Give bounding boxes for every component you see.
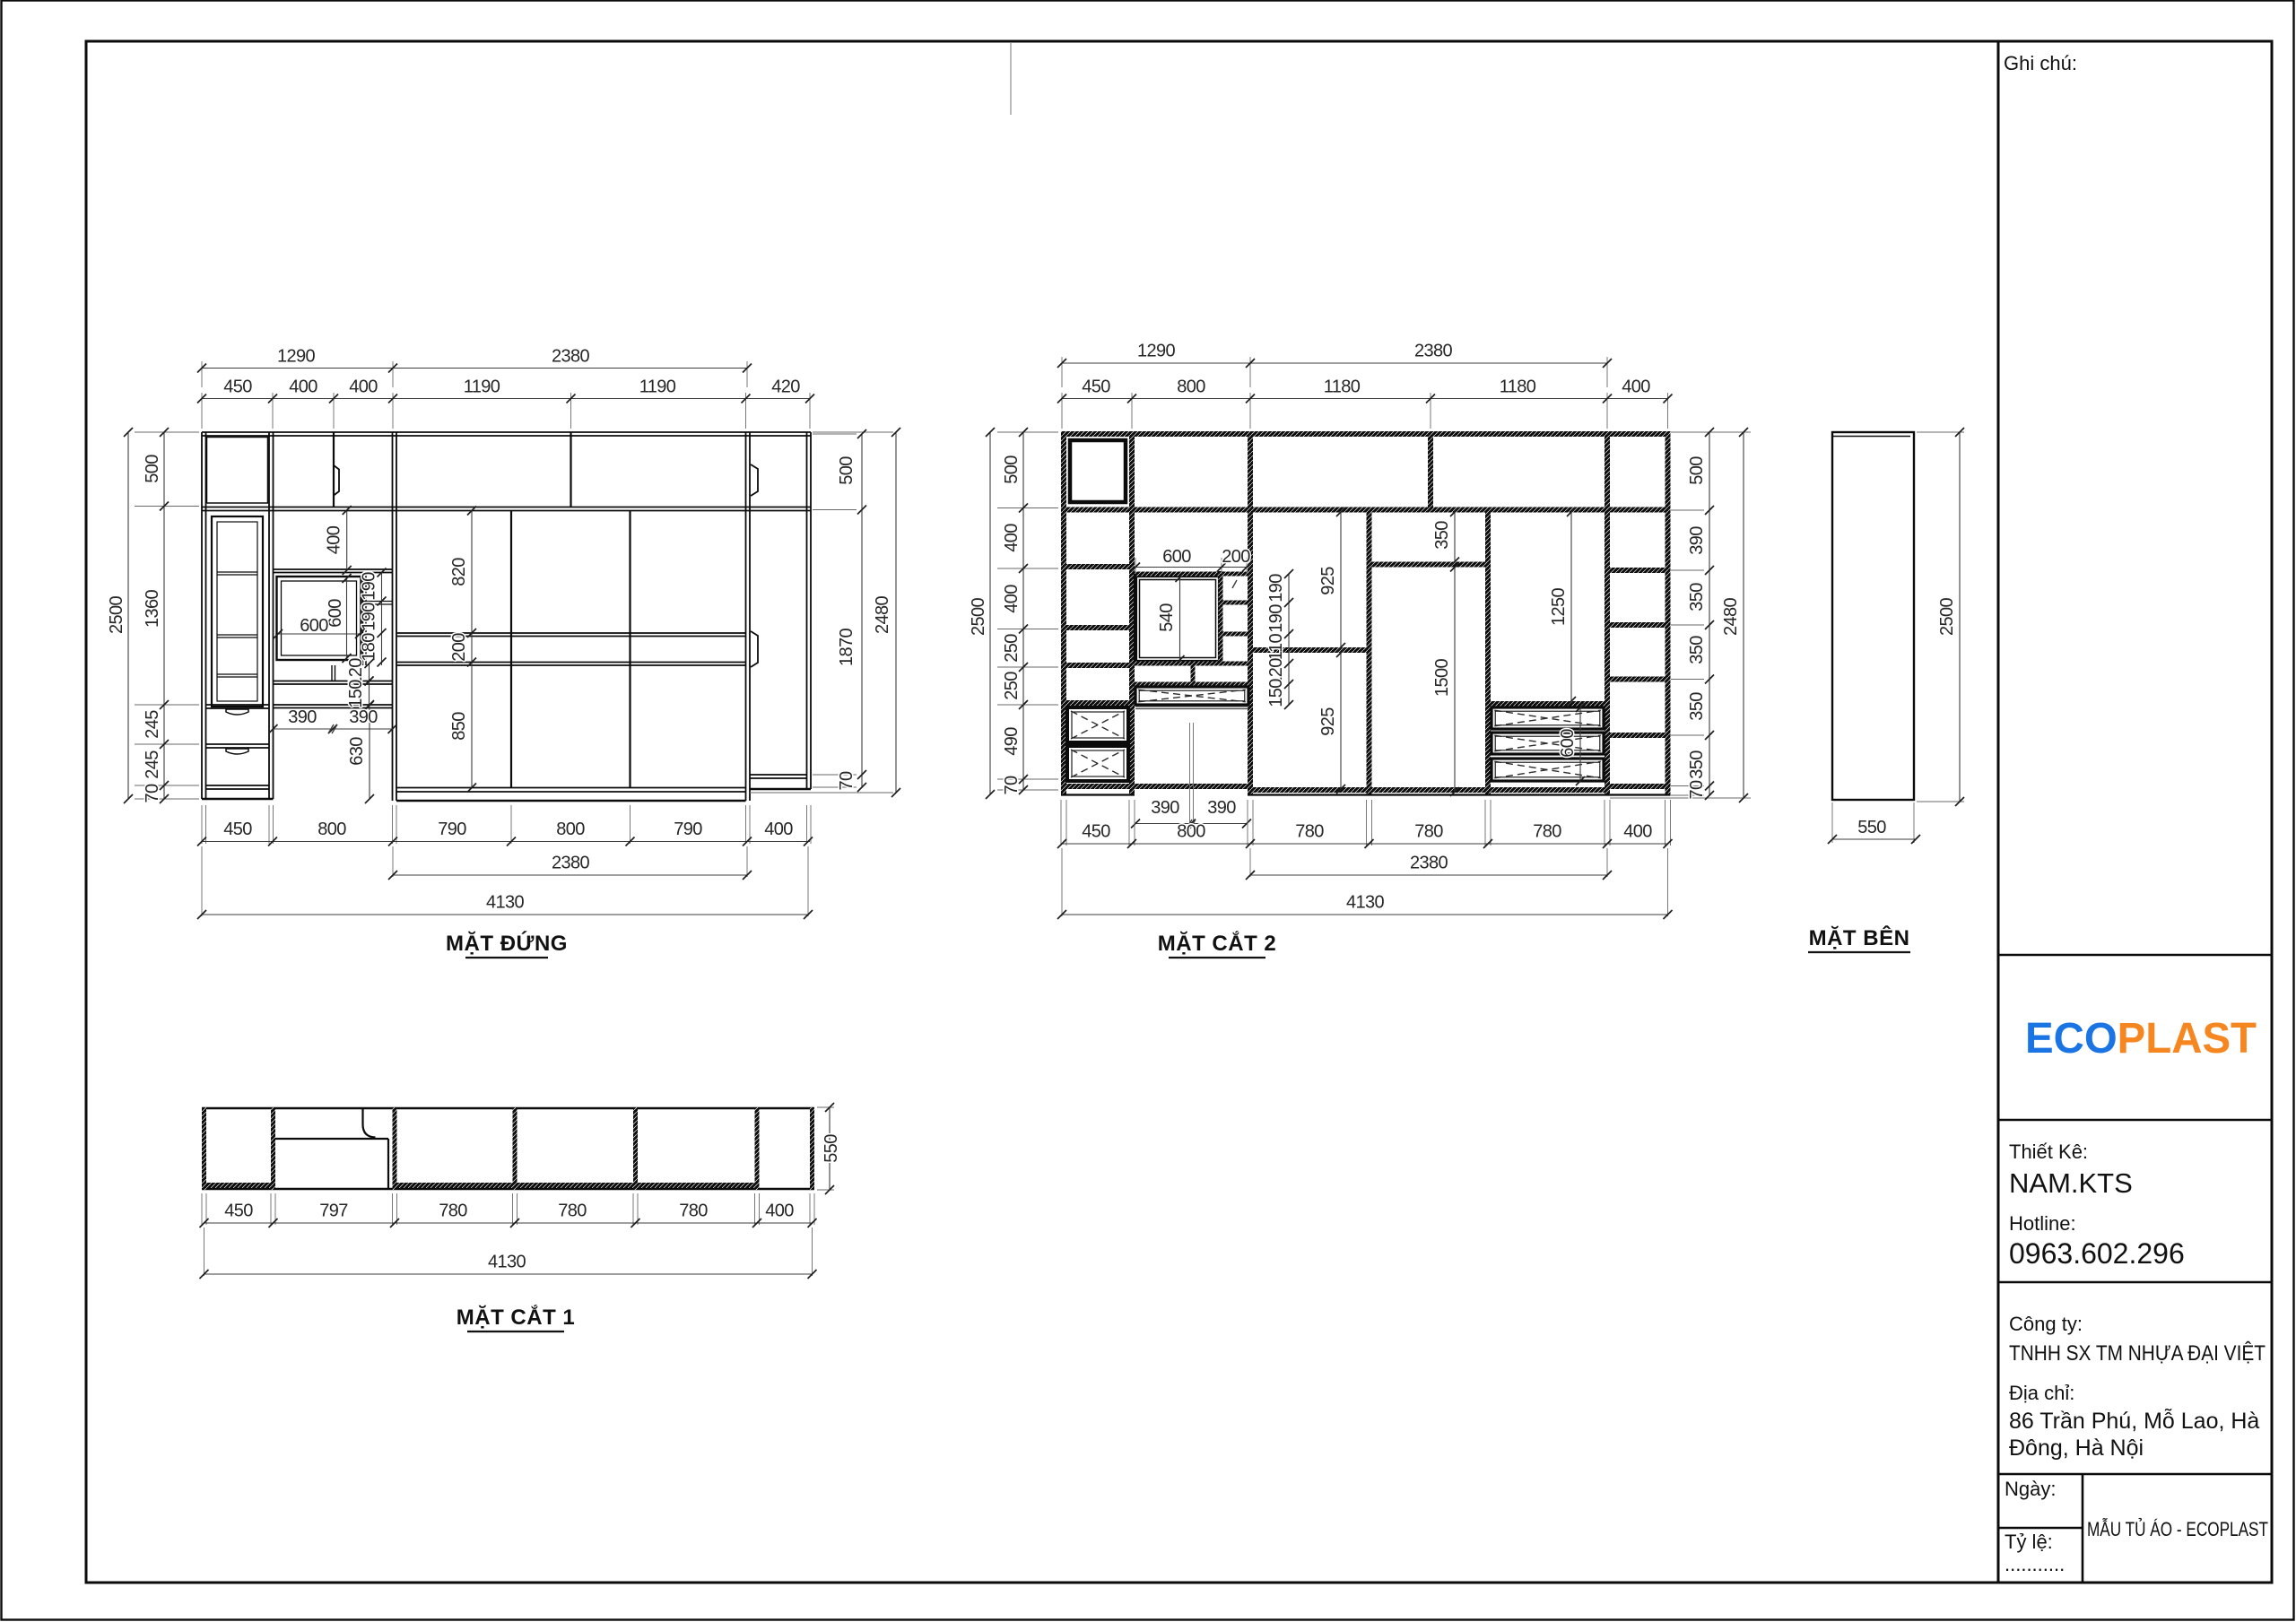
svg-text:800: 800 — [1177, 377, 1205, 397]
svg-text:797: 797 — [319, 1201, 348, 1221]
svg-text:...........: ........... — [2005, 1553, 2065, 1575]
svg-text:ECOPLAST: ECOPLAST — [2025, 1015, 2257, 1063]
svg-text:NAM.KTS: NAM.KTS — [2009, 1167, 2133, 1199]
svg-text:190: 190 — [360, 572, 379, 601]
svg-text:400: 400 — [1002, 585, 1022, 613]
svg-text:390: 390 — [349, 707, 378, 727]
svg-text:200: 200 — [1222, 547, 1250, 567]
svg-text:500: 500 — [1002, 455, 1022, 484]
svg-text:780: 780 — [1533, 822, 1561, 842]
svg-text:450: 450 — [1082, 377, 1110, 397]
svg-text:70: 70 — [1002, 776, 1022, 795]
svg-text:2380: 2380 — [1410, 854, 1448, 873]
svg-text:2380: 2380 — [552, 854, 590, 873]
svg-text:MẶT CẮT 1: MẶT CẮT 1 — [457, 1305, 576, 1330]
svg-text:190: 190 — [1266, 574, 1286, 603]
svg-text:490: 490 — [1002, 727, 1022, 756]
svg-text:1250: 1250 — [1549, 587, 1569, 626]
svg-text:800: 800 — [1177, 822, 1205, 842]
svg-text:1190: 1190 — [464, 377, 500, 397]
svg-text:400: 400 — [1002, 524, 1022, 552]
svg-text:450: 450 — [223, 377, 252, 397]
svg-text:110: 110 — [1266, 633, 1286, 661]
svg-text:450: 450 — [224, 1201, 253, 1221]
svg-text:150: 150 — [1266, 679, 1286, 707]
svg-text:820: 820 — [449, 558, 469, 586]
svg-text:850: 850 — [449, 712, 469, 741]
svg-text:450: 450 — [223, 820, 252, 839]
svg-text:450: 450 — [1082, 822, 1110, 842]
svg-text:400: 400 — [765, 1201, 794, 1221]
svg-text:400: 400 — [1622, 377, 1650, 397]
svg-text:MẪU TỦ ÁO - ECOPLAST: MẪU TỦ ÁO - ECOPLAST — [2087, 1517, 2268, 1540]
svg-text:800: 800 — [317, 820, 346, 839]
svg-text:540: 540 — [1157, 603, 1177, 632]
svg-text:350: 350 — [1432, 521, 1452, 550]
svg-text:2480: 2480 — [873, 595, 892, 634]
svg-text:390: 390 — [1151, 798, 1179, 818]
svg-text:390: 390 — [1687, 526, 1707, 555]
svg-text:200: 200 — [449, 633, 469, 662]
svg-text:550: 550 — [1857, 818, 1886, 837]
svg-text:790: 790 — [674, 820, 702, 839]
svg-text:245: 245 — [143, 710, 162, 739]
svg-text:Đông, Hà Nội: Đông, Hà Nội — [2009, 1436, 2144, 1461]
svg-text:180: 180 — [360, 633, 379, 662]
svg-text:2480: 2480 — [1721, 597, 1741, 636]
svg-text:70: 70 — [143, 784, 162, 803]
svg-text:600: 600 — [1162, 547, 1191, 567]
svg-text:390: 390 — [1207, 798, 1236, 818]
svg-text:2500: 2500 — [107, 595, 126, 634]
svg-text:800: 800 — [556, 820, 585, 839]
svg-text:Ghi chú:: Ghi chú: — [2004, 52, 2077, 74]
svg-text:780: 780 — [558, 1201, 587, 1221]
svg-text:400: 400 — [764, 820, 793, 839]
svg-text:400: 400 — [1623, 822, 1652, 842]
svg-text:780: 780 — [679, 1201, 708, 1221]
svg-text:500: 500 — [143, 455, 162, 483]
svg-text:TNHH SX TM NHỰA ĐẠI VIỆT: TNHH SX TM NHỰA ĐẠI VIỆT — [2009, 1341, 2266, 1366]
svg-text:MẶT BÊN: MẶT BÊN — [1809, 925, 1910, 950]
svg-text:Ngày:: Ngày: — [2005, 1478, 2056, 1500]
svg-text:0963.602.296: 0963.602.296 — [2009, 1237, 2185, 1270]
svg-text:350: 350 — [1687, 636, 1707, 664]
svg-text:400: 400 — [349, 377, 378, 397]
svg-text:Công ty:: Công ty: — [2009, 1313, 2083, 1335]
svg-text:350: 350 — [1687, 583, 1707, 612]
svg-text:400: 400 — [325, 525, 344, 554]
svg-text:390: 390 — [288, 707, 317, 727]
svg-text:4130: 4130 — [486, 893, 525, 913]
svg-text:500: 500 — [837, 456, 857, 485]
svg-text:350: 350 — [1687, 750, 1707, 779]
svg-text:2500: 2500 — [969, 597, 988, 636]
svg-text:250: 250 — [1002, 672, 1022, 700]
svg-text:4130: 4130 — [1346, 893, 1385, 913]
svg-text:600: 600 — [1558, 729, 1578, 758]
svg-text:500: 500 — [1687, 456, 1707, 485]
svg-text:1290: 1290 — [1137, 342, 1176, 361]
svg-text:1360: 1360 — [143, 589, 162, 628]
svg-text:MẶT CẮT 2: MẶT CẮT 2 — [1158, 931, 1277, 956]
svg-text:MẶT ĐỨNG: MẶT ĐỨNG — [446, 931, 568, 956]
svg-text:86 Trần Phú, Mỗ Lao, Hà: 86 Trần Phú, Mỗ Lao, Hà — [2009, 1408, 2259, 1434]
svg-text:1500: 1500 — [1432, 658, 1452, 697]
svg-text:400: 400 — [289, 377, 317, 397]
svg-text:1180: 1180 — [1324, 377, 1361, 397]
svg-text:925: 925 — [1318, 707, 1338, 736]
svg-text:190: 190 — [360, 603, 379, 631]
svg-text:780: 780 — [439, 1201, 467, 1221]
svg-text:Thiết Kê:: Thiết Kê: — [2009, 1141, 2088, 1163]
svg-text:2380: 2380 — [552, 347, 590, 367]
svg-text:630: 630 — [347, 737, 367, 766]
svg-text:4130: 4130 — [488, 1253, 526, 1272]
svg-text:600: 600 — [300, 616, 328, 636]
svg-text:190: 190 — [1266, 604, 1286, 633]
svg-text:150: 150 — [346, 680, 366, 708]
svg-text:250: 250 — [1002, 634, 1022, 663]
svg-text:2500: 2500 — [1937, 597, 1957, 636]
svg-text:70: 70 — [837, 771, 857, 791]
svg-text:70: 70 — [1687, 780, 1707, 800]
svg-text:790: 790 — [438, 820, 466, 839]
svg-text:780: 780 — [1414, 822, 1443, 842]
svg-text:550: 550 — [822, 1134, 841, 1163]
svg-text:2380: 2380 — [1414, 342, 1453, 361]
svg-text:1190: 1190 — [639, 377, 676, 397]
svg-text:1180: 1180 — [1500, 377, 1536, 397]
svg-text:245: 245 — [143, 750, 162, 779]
svg-text:Địa chỉ:: Địa chỉ: — [2009, 1382, 2074, 1404]
svg-text:Tỷ lệ:: Tỷ lệ: — [2005, 1531, 2053, 1553]
svg-text:925: 925 — [1318, 567, 1338, 595]
svg-text:780: 780 — [1295, 822, 1324, 842]
svg-text:1290: 1290 — [277, 347, 316, 367]
svg-text:600: 600 — [326, 599, 345, 628]
svg-text:1870: 1870 — [837, 628, 857, 666]
svg-text:350: 350 — [1687, 692, 1707, 721]
svg-text:Hotline:: Hotline: — [2009, 1212, 2076, 1235]
svg-text:420: 420 — [771, 377, 800, 397]
